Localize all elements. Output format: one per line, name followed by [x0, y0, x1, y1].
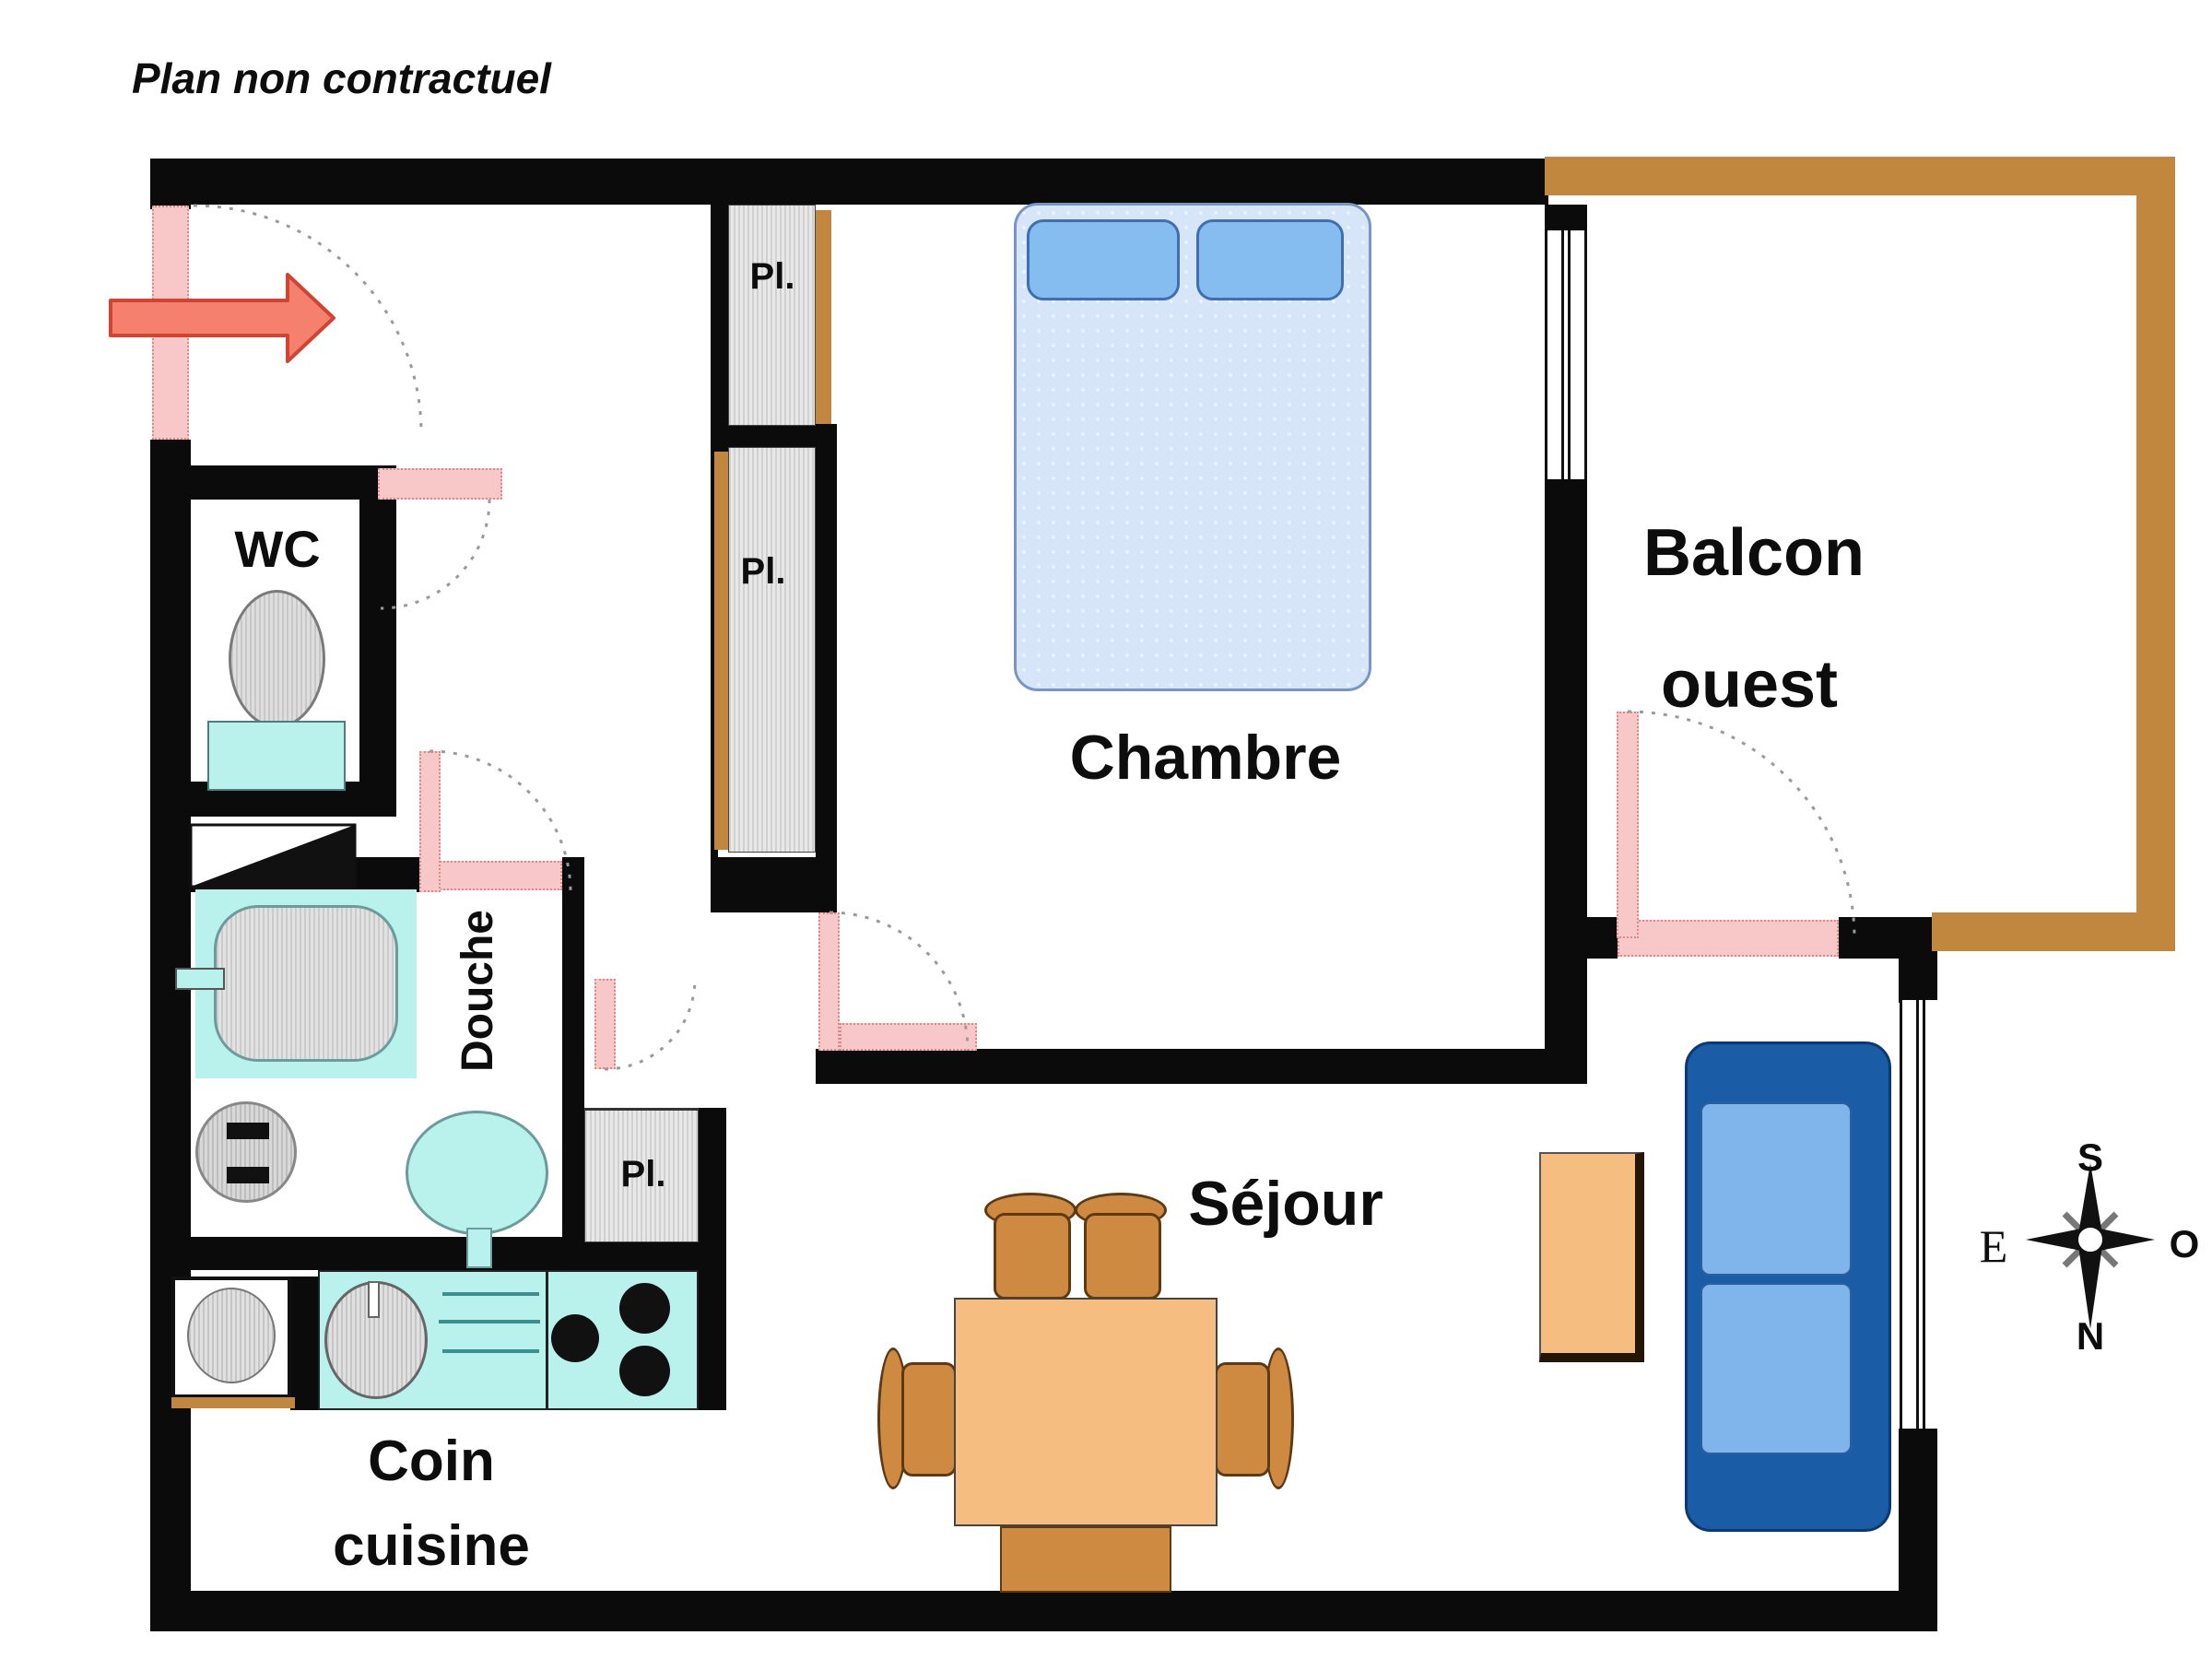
balcony-railing-right [2136, 157, 2175, 951]
wall-bottom [150, 1591, 1937, 1631]
sejour-door-arc [605, 979, 695, 1069]
plan-title: Plan non contractuel [132, 57, 551, 100]
room-label-douche: Douche [456, 910, 500, 1072]
bed-pillow-right [1196, 219, 1344, 300]
kitchen-drain-line-3 [442, 1349, 539, 1353]
closet-label-entry-lower: Pl. [741, 553, 786, 590]
balcony-door-leaf [1617, 712, 1639, 938]
bathroom-sink-pedestal [466, 1228, 492, 1268]
dining-chair-north-right [1084, 1213, 1161, 1300]
wall-balcony-left-lower [1545, 479, 1587, 1084]
kitchen-plinth-line [171, 1397, 295, 1408]
wc-door-arc [381, 500, 489, 608]
sejour-door-leaf [594, 979, 616, 1069]
kitchen-drain-line-2 [439, 1320, 540, 1324]
room-label-sejour: Séjour [1188, 1172, 1383, 1235]
wall-douche-right [562, 857, 584, 1270]
entry-door-arc [194, 206, 421, 433]
dining-chair-east [1215, 1362, 1270, 1477]
compass-rose-icon [2026, 1163, 2155, 1329]
balcony-railing-top [1545, 157, 2175, 195]
wall-wc-right [359, 465, 396, 788]
wall-douche-top [150, 857, 433, 892]
wall-kitchen-divider [290, 1277, 318, 1410]
closet-label-entry-upper: Pl. [750, 258, 795, 295]
closet-label-sejour-small: Pl. [621, 1156, 666, 1193]
wall-closet1-left [711, 205, 729, 441]
wall-closet2-bottom [711, 857, 837, 912]
balcony-door-arc [1628, 712, 1854, 938]
entry-door-sill [152, 206, 189, 440]
wall-balcony-left-upper [1545, 205, 1587, 230]
wall-left-upper [150, 159, 191, 209]
kitchen-appliance-drum [187, 1288, 276, 1383]
stove-burner-bottom-right [619, 1346, 670, 1396]
room-label-wc: WC [234, 524, 320, 575]
bathroom-sink [406, 1111, 548, 1235]
bed-pillow-left [1027, 219, 1180, 300]
room-label-balcon-line1: Balcon [1643, 520, 1865, 586]
toilet-bowl [229, 590, 325, 728]
kitchen-faucet [368, 1281, 380, 1318]
wall-top [150, 159, 1548, 205]
sofa-cushion-bottom [1700, 1283, 1852, 1454]
wall-closet-small-right [699, 1108, 726, 1410]
compass-label-west: O [2170, 1225, 2200, 1264]
room-label-chambre: Chambre [1070, 726, 1342, 789]
balcony-railing-bottom [1932, 912, 2175, 951]
dining-chair-west [901, 1362, 957, 1477]
balcony-door-sill [1618, 920, 1839, 957]
closet-entry-lower [728, 447, 816, 853]
closet-entry-lower-open-side [714, 452, 728, 850]
room-label-balcon-line2: ouest [1661, 652, 1838, 718]
kitchen-drain-line-1 [442, 1292, 539, 1296]
shower-basin [214, 905, 398, 1062]
chambre-door-leaf [818, 912, 840, 1051]
closet-entry-upper-open-side [816, 210, 831, 424]
dining-table [954, 1298, 1218, 1526]
floor-plan: Plan non contractuel WC Douche Chambre B… [0, 0, 2212, 1659]
washing-machine-knob-top [227, 1123, 269, 1139]
window-sejour-east [1900, 1000, 1937, 1429]
chambre-door-threshold [840, 1023, 977, 1051]
wall-closet2-right [816, 441, 837, 912]
compass-label-east: E [1980, 1223, 2008, 1269]
closet-entry-upper [728, 205, 816, 426]
kitchen-counter-divider [546, 1272, 548, 1408]
compass-label-north: N [2077, 1317, 2104, 1356]
stove-burner-top-right [619, 1283, 670, 1334]
coffee-table [1539, 1152, 1644, 1362]
stove-burner-left [551, 1314, 599, 1362]
wall-left-lower [150, 440, 191, 1631]
sofa-cushion-top [1700, 1102, 1852, 1276]
wall-douche-bottom [150, 1237, 584, 1270]
compass-label-south: S [2077, 1138, 2103, 1177]
douche-door-leaf [419, 751, 441, 892]
washing-machine-douche [195, 1101, 297, 1203]
douche-door-threshold [433, 861, 562, 890]
wall-balcony-door-corner-west [1548, 917, 1618, 959]
entry-arrow-icon [111, 275, 334, 361]
room-label-cuisine-line1: Coin [368, 1433, 495, 1490]
wc-door-partition [378, 468, 502, 500]
room-label-cuisine-line2: cuisine [333, 1518, 530, 1575]
wall-balcony-door-corner-east [1839, 917, 1937, 959]
dining-chair-south [1000, 1526, 1171, 1593]
window-chambre-balcony [1545, 230, 1587, 479]
dining-chair-north-left [994, 1213, 1071, 1300]
toilet-tank [207, 721, 346, 791]
wall-wc-top [191, 465, 378, 500]
wall-chambre-sejour [816, 1049, 1587, 1084]
shower-faucet [175, 968, 225, 990]
wall-right-lower [1899, 1429, 1937, 1594]
washing-machine-knob-bottom [227, 1167, 269, 1183]
